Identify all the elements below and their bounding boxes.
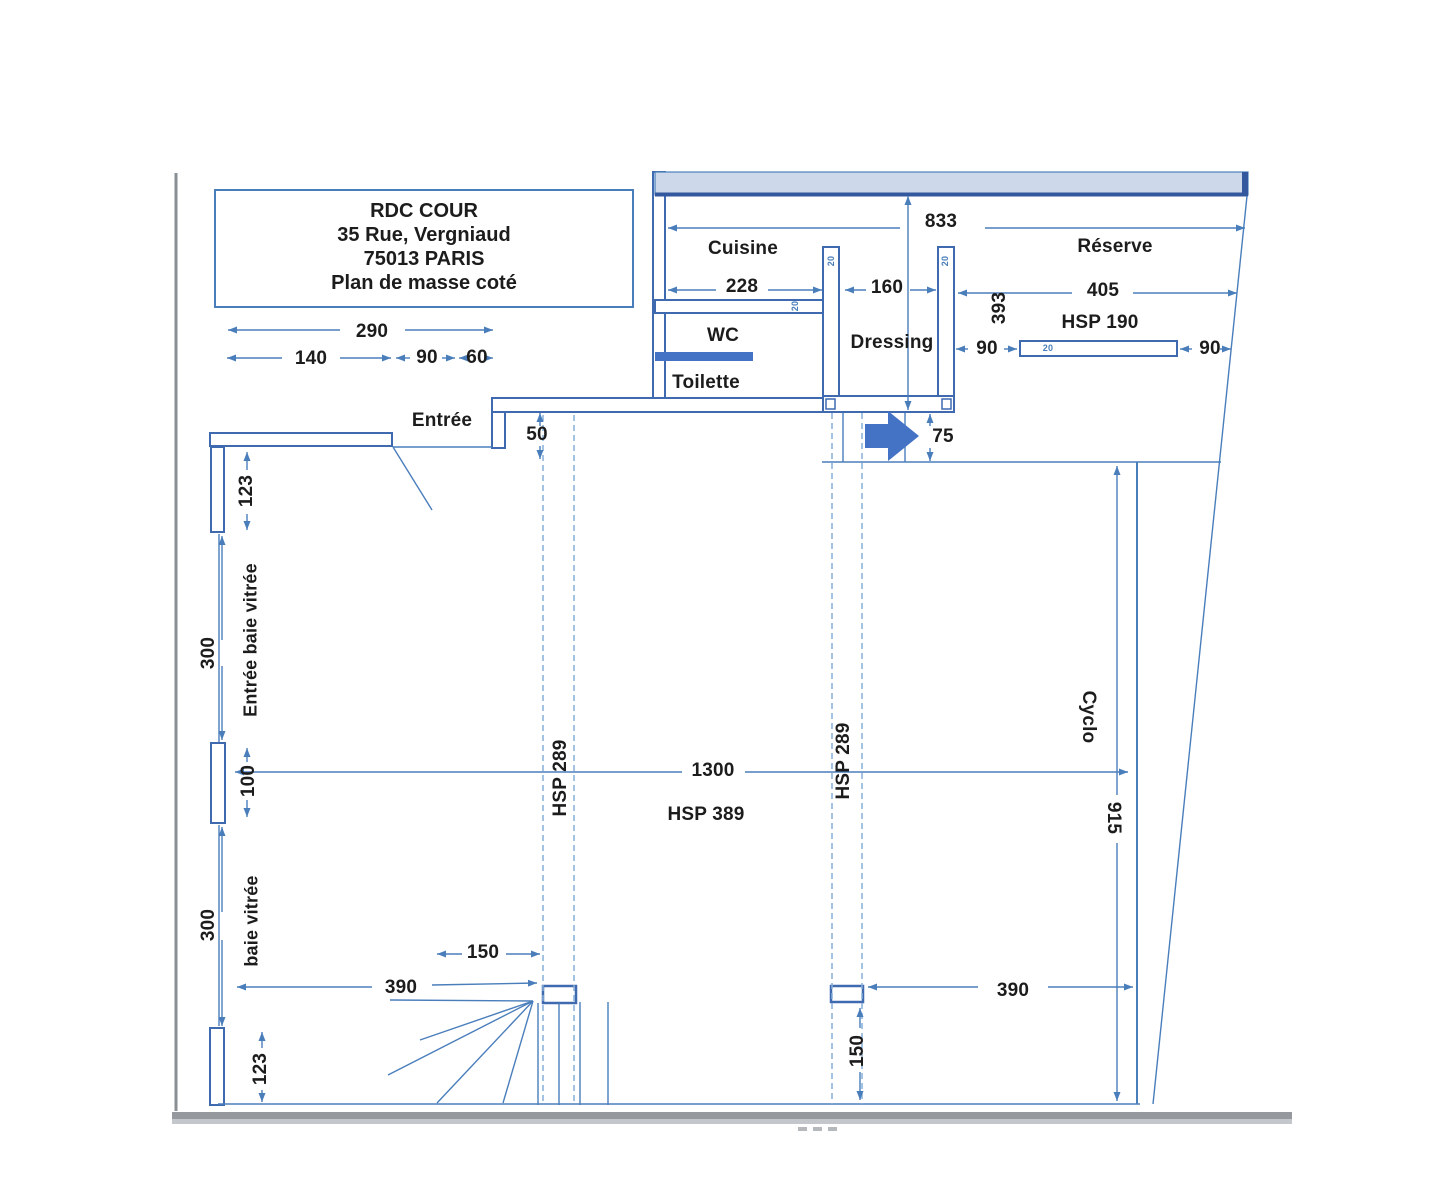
- dim-390-left: 390: [385, 977, 417, 999]
- dim-228: 228: [726, 276, 758, 298]
- dim-50: 50: [526, 424, 548, 446]
- room-label-cyclo: Cyclo: [1077, 691, 1099, 744]
- direction-arrow: [865, 411, 919, 461]
- room-label-toilette: Toilette: [672, 372, 740, 394]
- annotation-hsp289-right: HSP 289: [833, 722, 855, 799]
- annotation-hsp389: HSP 389: [667, 804, 744, 826]
- dim-300-bottom: 300: [198, 909, 220, 941]
- dim-150-left: 150: [467, 942, 499, 964]
- title-line-1: RDC COUR: [331, 199, 517, 223]
- dim-160: 160: [871, 277, 903, 299]
- room-label-wc: WC: [707, 325, 739, 347]
- dim-75: 75: [932, 426, 954, 448]
- top-facade-wall: [655, 172, 1248, 195]
- fan-line: [388, 1001, 533, 1075]
- plan-linework: [0, 0, 1455, 1200]
- annotation-entree-baie-vitree: Entrée baie vitrée: [241, 563, 262, 717]
- dim-60: 60: [466, 347, 488, 369]
- title-line-3: 75013 PARIS: [331, 247, 517, 271]
- title-block: RDC COUR 35 Rue, Vergniaud 75013 PARIS P…: [331, 199, 517, 295]
- dim-290: 290: [356, 321, 388, 343]
- floor-plan-page: RDC COUR 35 Rue, Vergniaud 75013 PARIS P…: [0, 0, 1455, 1200]
- dim-90-shelf-right: 90: [1199, 338, 1221, 360]
- dim-20-cuisine-wall: 20: [790, 301, 800, 311]
- dim-150-right: 150: [847, 1035, 869, 1067]
- dim-393: 393: [989, 292, 1011, 324]
- dim-405: 405: [1087, 280, 1119, 302]
- dim-90-top: 90: [416, 347, 438, 369]
- annotation-hsp289-left: HSP 289: [550, 739, 572, 816]
- dim-123-top: 123: [236, 475, 258, 507]
- room-label-entree: Entrée: [412, 410, 472, 432]
- fan-line: [420, 1001, 533, 1040]
- dim-100: 100: [238, 765, 260, 797]
- door-swing-line: [393, 447, 432, 510]
- dim-20-shelf-wall: 20: [1043, 343, 1053, 353]
- dim-123-bottom: 123: [250, 1053, 272, 1085]
- room-label-cuisine: Cuisine: [708, 238, 778, 260]
- dashed-guides: [543, 413, 862, 1104]
- slanted-boundary: [1153, 196, 1247, 1104]
- dim-390-right: 390: [997, 980, 1029, 1002]
- wc-partition-bar: [655, 352, 753, 361]
- dim-20-dressing-left-wall: 20: [826, 256, 836, 266]
- annotation-hsp190: HSP 190: [1061, 312, 1138, 334]
- dim-300-top: 300: [198, 637, 220, 669]
- dim-140: 140: [295, 348, 327, 370]
- walls: [210, 172, 1177, 1105]
- dim-915: 915: [1102, 802, 1124, 834]
- title-line-4: Plan de masse coté: [331, 271, 517, 295]
- room-label-reserve: Réserve: [1077, 236, 1152, 258]
- title-line-2: 35 Rue, Vergniaud: [331, 223, 517, 247]
- dim-20-dressing-right-wall: 20: [940, 256, 950, 266]
- room-label-dressing: Dressing: [851, 332, 934, 354]
- annotation-baie-vitree: baie vitrée: [242, 875, 263, 966]
- dim-1300: 1300: [691, 760, 734, 782]
- dim-833: 833: [925, 211, 957, 233]
- dim-90-shelf-left: 90: [976, 338, 998, 360]
